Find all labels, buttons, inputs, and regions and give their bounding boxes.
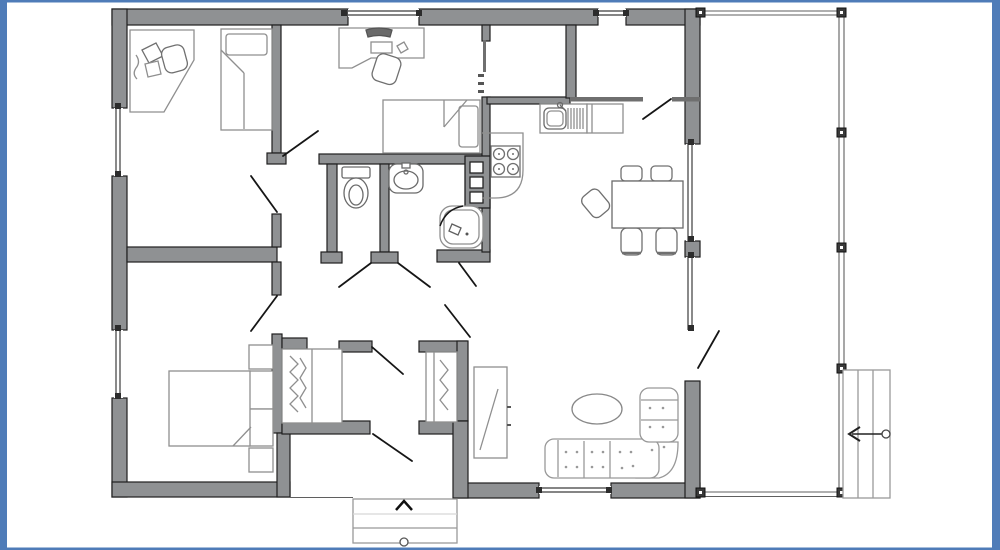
wardrobe-b: [426, 352, 457, 422]
window-cap-13: [688, 252, 694, 258]
terrace-post-3: [837, 128, 846, 137]
window-top-2-opening: [598, 9, 626, 17]
window-cap-5: [115, 103, 121, 109]
window-left-2: [114, 330, 123, 398]
corner-sofa-part-19: [632, 465, 635, 468]
door-hinge-marks: [478, 74, 484, 93]
corner-sofa-part-25: [663, 446, 666, 449]
coffee-table-part-0: [572, 394, 622, 424]
floor-plan-canvas: [0, 0, 1000, 550]
dining-set-part-2: [621, 228, 642, 255]
terrace-post-1-center: [699, 11, 702, 14]
window-cap-9: [536, 487, 542, 493]
coffee-table: [572, 394, 622, 424]
window-cap-8: [115, 393, 121, 399]
terrace-post-1: [696, 8, 705, 17]
corner-sofa-part-20: [649, 407, 652, 410]
window-cap-4: [623, 10, 629, 16]
door-hinge-marks-part-2: [478, 90, 484, 93]
toilet: [342, 167, 370, 208]
window-cap-3: [593, 10, 599, 16]
terrace-post-7: [696, 488, 705, 497]
window-right-1: [686, 144, 695, 241]
corner-sofa-part-2: [640, 388, 678, 442]
wc-wall-west: [327, 164, 337, 252]
office-desk-b-part-1: [366, 28, 392, 37]
window-cap-14: [688, 325, 694, 331]
page: { "palette":{ "background":"#ffffff", "f…: [0, 0, 1000, 550]
double-bed-part-2: [249, 371, 273, 409]
double-bed-part-0: [249, 345, 273, 369]
dining-set-part-5: [612, 181, 683, 228]
kitchen-wall-north-east: [672, 97, 700, 102]
corner-sofa-part-11: [576, 466, 579, 469]
corner-sofa-part-23: [662, 426, 665, 429]
kitchen-counter-part-22: [512, 168, 514, 170]
corner-sofa-part-10: [565, 466, 568, 469]
frame-top: [0, 0, 1000, 3]
terrace-post-2: [837, 8, 846, 17]
window-right-1-opening: [686, 144, 695, 241]
floor-plan-svg: [0, 0, 1000, 550]
office-desk-b-part-2: [371, 42, 392, 53]
kitchen-counter-part-20: [512, 153, 514, 155]
terrace-post-4-center: [840, 246, 843, 249]
corner-sofa-part-15: [602, 466, 605, 469]
double-bed-part-1: [249, 448, 273, 472]
dining-set-part-0: [621, 166, 642, 181]
window-top-1: [348, 9, 419, 17]
double-bed-part-3: [249, 409, 273, 446]
corner-sofa-part-22: [649, 426, 652, 429]
closet-lintel-1: [282, 338, 307, 349]
room-divider-west: [272, 25, 281, 153]
corner-sofa-part-17: [630, 451, 633, 454]
right-wall-upper: [685, 9, 700, 144]
entry-wall-west: [277, 433, 290, 497]
kitchen-wall-north-mid: [570, 97, 643, 102]
window-right-2-opening: [686, 257, 695, 330]
storage-wall-west: [566, 25, 576, 98]
hall-stub-south: [272, 262, 281, 295]
corner-sofa-part-1: [545, 439, 659, 478]
terrace-steps: [843, 370, 890, 498]
terrace-post-4: [837, 243, 846, 252]
window-bottom-1: [539, 486, 611, 494]
kitchen-wall-west-stub: [482, 25, 490, 41]
toilet-part-1: [344, 178, 368, 208]
entry-porch: [353, 499, 457, 546]
window-left-2-opening: [114, 330, 123, 398]
window-right-2: [686, 257, 695, 330]
corner-sofa-part-16: [619, 451, 622, 454]
window-cap-1: [341, 10, 347, 16]
door-hinge-marks-part-1: [478, 82, 484, 85]
single-bed-b: [383, 100, 480, 153]
water-heater-stack: [465, 156, 490, 208]
window-cap-10: [606, 487, 612, 493]
closet-lintel-2: [339, 341, 372, 352]
window-cap-2: [416, 10, 422, 16]
window-cap-12: [688, 236, 694, 242]
hall-stub-north: [272, 214, 281, 247]
corner-sofa-part-9: [576, 451, 579, 454]
window-left-1-opening: [114, 108, 123, 176]
washbasin: [389, 163, 423, 193]
toilet-part-0: [342, 167, 370, 178]
bath-divider-foot: [371, 252, 398, 263]
corner-sofa-part-13: [602, 451, 605, 454]
water-heater-stack-part-3: [470, 192, 483, 203]
single-bed-a: [221, 29, 272, 130]
kitchen-counter-part-19: [498, 153, 500, 155]
frame-right: [992, 0, 1000, 550]
corner-sofa-part-14: [591, 466, 594, 469]
corner-shower-part-4: [466, 233, 469, 236]
terrace-post-2-center: [840, 11, 843, 14]
frame-left: [0, 0, 7, 550]
single-bed-b-part-0: [383, 100, 480, 153]
corner-sofa-part-21: [662, 407, 665, 410]
right-wall-lower: [685, 381, 700, 498]
top-wall-mid: [419, 9, 598, 25]
entry-wall-east: [453, 421, 468, 498]
corner-sofa-part-24: [651, 449, 654, 452]
left-wall-mid: [112, 176, 127, 330]
window-cap-7: [115, 325, 121, 331]
kitchen-counter-part-21: [498, 168, 500, 170]
dining-set-part-3: [656, 228, 677, 255]
corner-shower: [440, 206, 483, 248]
window-top-1-opening: [348, 9, 419, 17]
window-top-2: [598, 9, 626, 17]
corner-sofa-part-12: [591, 451, 594, 454]
office-desk-a-part-3: [145, 61, 161, 77]
window-cap-6: [115, 171, 121, 177]
left-wall-upper: [112, 9, 127, 108]
room-divider-west-foot: [267, 153, 286, 164]
terrace-post-7-center: [699, 491, 702, 494]
bedroom-b-partition: [483, 40, 486, 72]
corner-sofa-part-18: [621, 467, 624, 470]
corner-sofa-part-8: [565, 451, 568, 454]
window-left-1: [114, 108, 123, 176]
single-bed-a-part-0: [221, 29, 272, 130]
door-hinge-marks-part-0: [478, 74, 484, 77]
top-wall-left: [112, 9, 348, 25]
washbasin-part-2: [402, 163, 410, 168]
bottom-wall-left: [112, 482, 290, 497]
window-cap-11: [688, 139, 694, 145]
tv-cabinet: [474, 367, 511, 458]
water-heater-stack-part-2: [470, 177, 483, 188]
wardrobe-a: [282, 349, 342, 423]
kitchen-wall-north-west: [487, 97, 570, 104]
closet-wall-east: [457, 341, 468, 421]
dining-set-part-1: [651, 166, 672, 181]
entry-porch-part-4: [400, 538, 408, 546]
bath-divider: [380, 164, 389, 252]
hall-wall-west: [127, 247, 277, 262]
water-heater-stack-part-1: [470, 162, 483, 173]
entry-porch-part-0: [353, 499, 457, 543]
double-bed-part-4: [169, 371, 250, 446]
terrace-steps-part-5: [882, 430, 890, 438]
wc-wall-west-foot: [321, 252, 342, 263]
window-bottom-1-opening: [539, 486, 611, 494]
terrace-post-3-center: [840, 131, 843, 134]
